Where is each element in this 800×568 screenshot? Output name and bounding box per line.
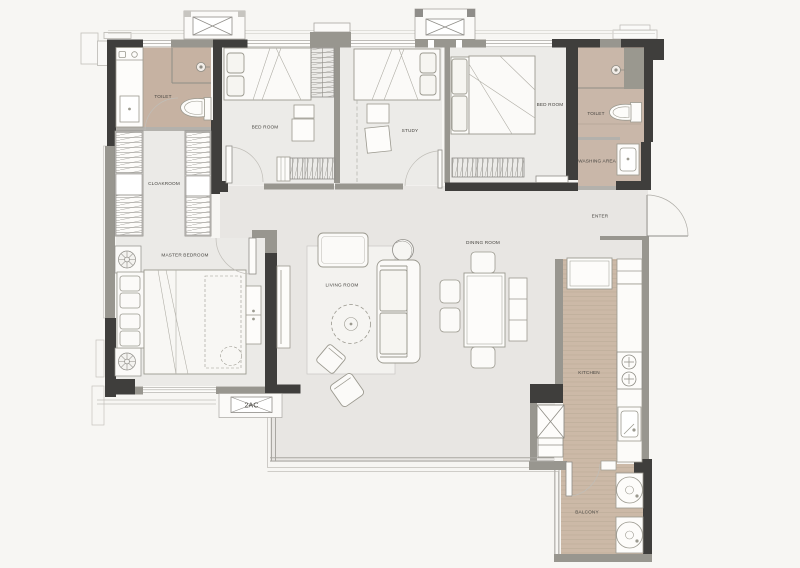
- svg-text:STUDY: STUDY: [402, 128, 419, 133]
- svg-text:TOILET: TOILET: [587, 111, 604, 116]
- svg-text:2AC: 2AC: [244, 403, 258, 410]
- svg-text:LIVING ROOM: LIVING ROOM: [326, 283, 359, 288]
- svg-text:CLOAKROOM: CLOAKROOM: [148, 181, 180, 186]
- svg-text:BED ROOM: BED ROOM: [537, 102, 564, 107]
- svg-text:KITCHEN: KITCHEN: [578, 370, 600, 375]
- svg-text:DINING ROOM: DINING ROOM: [466, 240, 500, 245]
- svg-text:BED ROOM: BED ROOM: [252, 125, 279, 130]
- svg-text:MASTER BEDROOM: MASTER BEDROOM: [161, 253, 208, 258]
- svg-text:TOILET: TOILET: [154, 94, 171, 99]
- svg-text:ENTER: ENTER: [592, 214, 609, 219]
- svg-text:WASHING AREA: WASHING AREA: [578, 159, 617, 164]
- svg-text:BALCONY: BALCONY: [575, 510, 599, 515]
